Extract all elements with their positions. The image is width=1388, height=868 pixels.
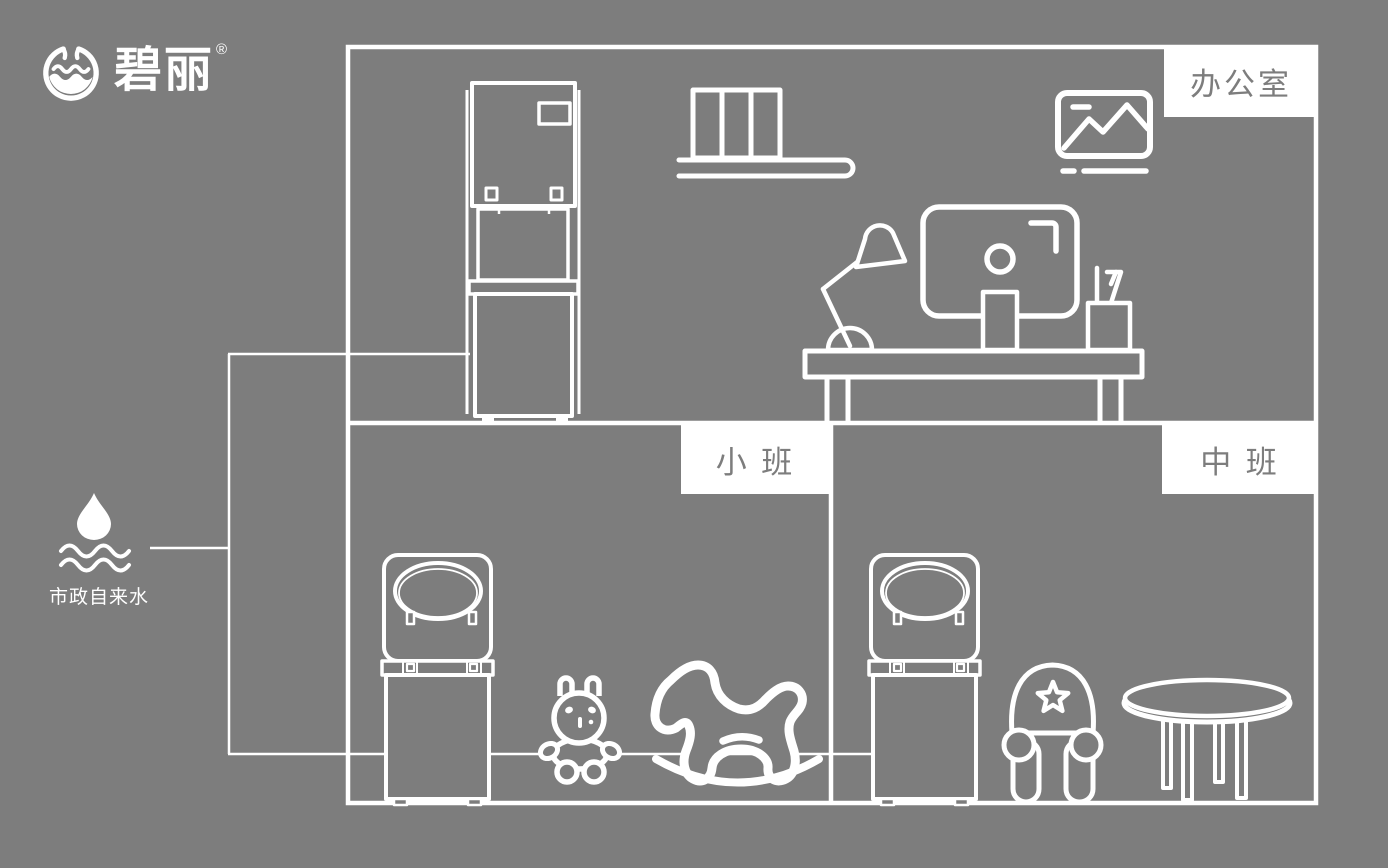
chair-armrest-left (1004, 730, 1034, 760)
chair-armrest-right (1071, 730, 1101, 760)
wave-line-2 (61, 560, 129, 571)
table-top-surface (1125, 680, 1289, 716)
room-label-middle-class: 中 班 (1162, 425, 1318, 494)
floorplan-stage: 碧丽 ® 办公室 小 班 中 班 市政自来水 (0, 0, 1388, 863)
room-label-junior-class: 小 班 (681, 425, 830, 494)
books (693, 90, 780, 158)
frame-border (1058, 93, 1150, 156)
desk-lamp-icon (823, 225, 905, 350)
table-leg-4 (1237, 714, 1246, 798)
kids-chair-icon (1004, 665, 1101, 802)
child-water-dispenser-middle-icon (869, 555, 980, 805)
wave-line-1 (61, 546, 129, 557)
room-label-junior-text: 小 班 (716, 437, 796, 482)
pen-cup (1088, 303, 1130, 350)
lamp-shade (856, 225, 905, 267)
horse-body (655, 665, 802, 781)
horse-saddle-line (723, 737, 759, 741)
table-leg-1 (1163, 714, 1171, 788)
registered-trademark: ® (216, 42, 227, 57)
monitor-stand (983, 292, 1017, 350)
toy-rabbit-icon (538, 678, 623, 782)
dispenser-lower-cabinet (475, 294, 572, 416)
water-cup-logo-icon (40, 40, 102, 102)
room-label-office: 办公室 (1164, 45, 1318, 117)
dispenser-foot-left (482, 416, 494, 421)
rocking-horse-icon (655, 665, 819, 783)
rabbit-foot-left (557, 762, 577, 782)
brand-logo: 碧丽 ® (40, 40, 227, 102)
rabbit-foot-right (584, 762, 604, 782)
bookshelf-icon (679, 90, 853, 176)
dispenser-foot-right (556, 416, 568, 421)
child-water-dispenser-junior-icon (382, 555, 493, 805)
picture-frame-icon (1058, 93, 1150, 171)
round-table-icon (1124, 680, 1290, 800)
office-water-dispenser-icon (467, 83, 579, 421)
computer-monitor-icon (923, 207, 1077, 350)
room-label-office-text: 办公室 (1190, 59, 1292, 104)
water-drop-icon (77, 493, 111, 540)
water-source-caption: 市政自来水 (33, 582, 165, 609)
rabbit-cheek-dot (589, 720, 594, 725)
room-label-middle-text: 中 班 (1200, 437, 1280, 482)
shelf-board (679, 160, 853, 176)
water-source-icon (61, 493, 129, 571)
brand-name: 碧丽 (114, 40, 214, 102)
office-desk-group (805, 207, 1142, 421)
water-source-caption-text: 市政自来水 (49, 587, 149, 608)
desk-top (805, 351, 1142, 377)
dispenser-basin (478, 209, 568, 280)
table-leg-2 (1183, 714, 1192, 800)
pen-holder-icon (1088, 268, 1130, 350)
